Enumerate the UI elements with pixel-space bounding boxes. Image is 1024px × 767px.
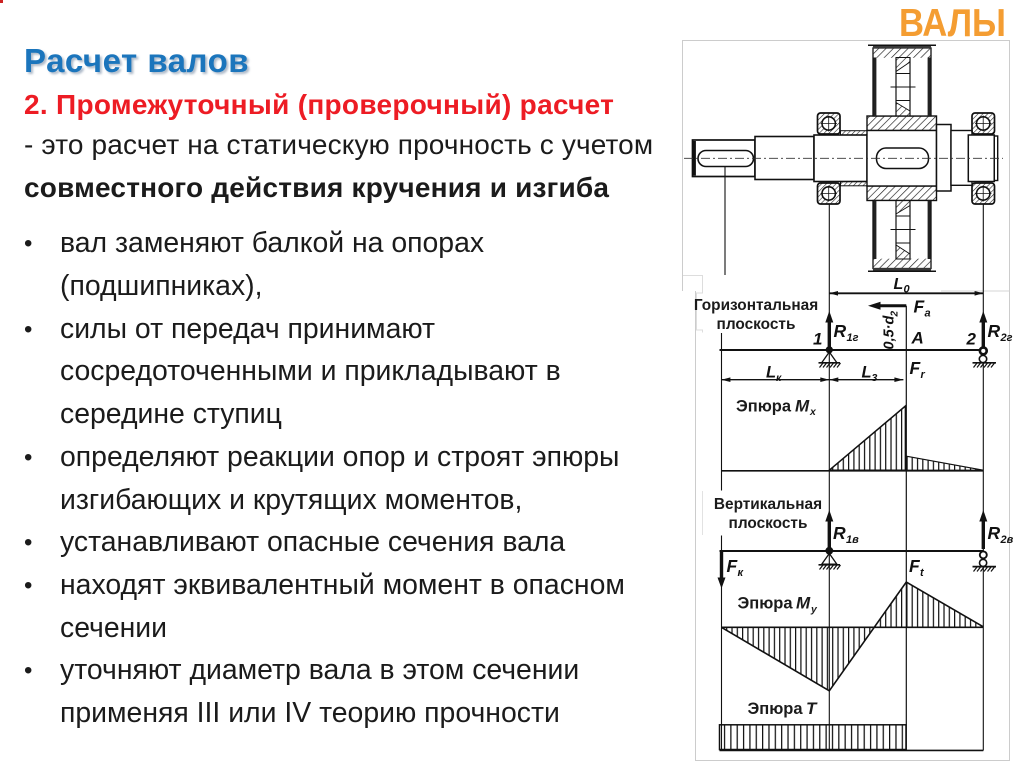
- svg-text:L: L: [894, 276, 904, 293]
- svg-text:2: 2: [966, 330, 977, 349]
- svg-text:к: к: [776, 372, 782, 384]
- svg-text:1г: 1г: [847, 332, 859, 344]
- svg-text:3: 3: [872, 372, 878, 384]
- svg-text:Эпюра: Эпюра: [748, 700, 804, 718]
- svg-text:Горизонтальная: Горизонтальная: [694, 297, 818, 314]
- svg-text:1: 1: [813, 330, 822, 349]
- svg-text:r: r: [921, 369, 926, 381]
- svg-text:L: L: [766, 364, 776, 382]
- svg-text:2г: 2г: [1000, 332, 1013, 344]
- svg-text:Вертикальная: Вертикальная: [714, 496, 822, 513]
- svg-text:R: R: [988, 321, 1001, 341]
- svg-text:Эпюра: Эпюра: [736, 398, 792, 416]
- svg-text:2в: 2в: [1000, 534, 1014, 546]
- svg-text:а: а: [925, 308, 931, 320]
- svg-text:Эпюра: Эпюра: [738, 595, 794, 613]
- svg-text:R: R: [834, 321, 847, 341]
- svg-text:1в: 1в: [846, 534, 859, 546]
- svg-text:x: x: [809, 406, 817, 418]
- svg-text:2: 2: [890, 311, 901, 318]
- svg-text:0: 0: [904, 284, 911, 296]
- svg-text:R: R: [833, 523, 846, 543]
- svg-text:A: A: [911, 329, 924, 348]
- svg-text:плоскость: плоскость: [729, 515, 808, 532]
- svg-text:M: M: [795, 397, 810, 416]
- svg-text:R: R: [988, 523, 1001, 543]
- svg-text:M: M: [796, 594, 811, 613]
- svg-text:t: t: [920, 567, 925, 579]
- svg-text:L: L: [862, 364, 872, 382]
- svg-text:плоскость: плоскость: [717, 316, 796, 333]
- svg-text:0,5·d: 0,5·d: [882, 315, 898, 350]
- svg-text:T: T: [806, 699, 818, 718]
- svg-text:к: к: [738, 567, 745, 579]
- svg-text:y: y: [810, 604, 818, 616]
